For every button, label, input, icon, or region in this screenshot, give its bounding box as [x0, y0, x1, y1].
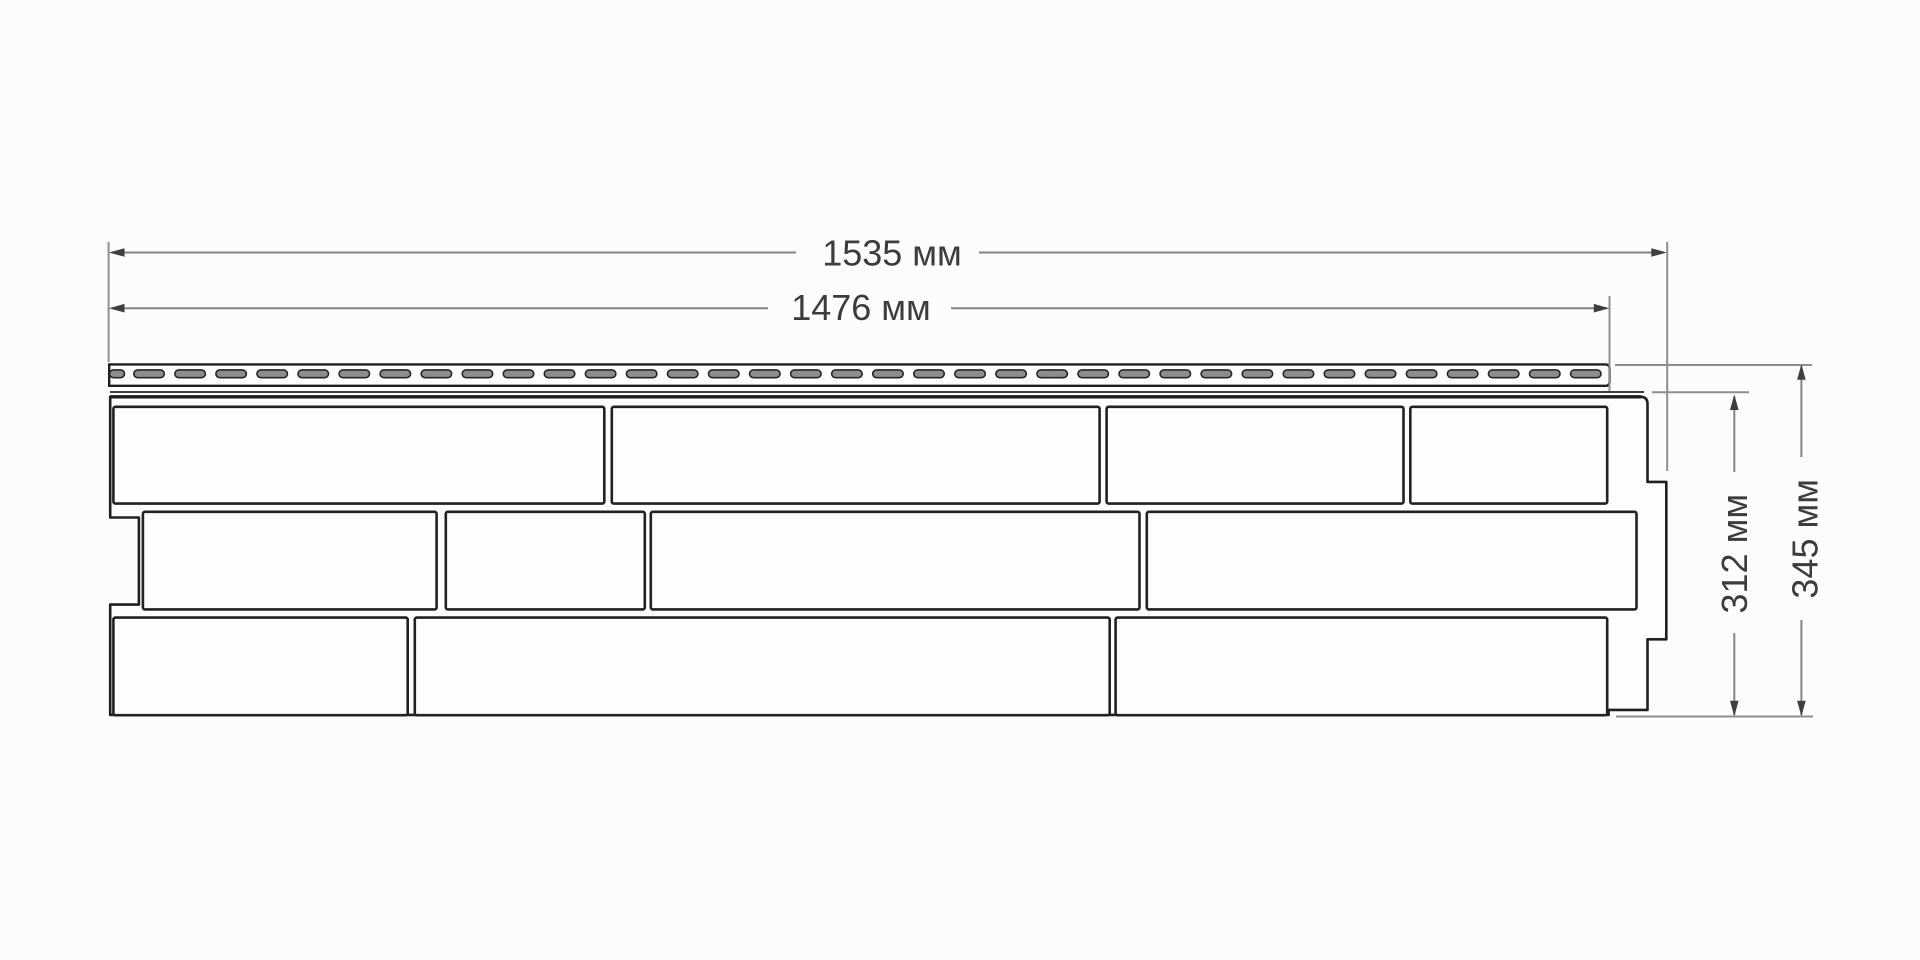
svg-text:345 мм: 345 мм [1785, 479, 1826, 599]
svg-text:1476 мм: 1476 мм [791, 287, 931, 328]
svg-text:1535 мм: 1535 мм [822, 233, 962, 274]
svg-text:312 мм: 312 мм [1714, 494, 1755, 614]
